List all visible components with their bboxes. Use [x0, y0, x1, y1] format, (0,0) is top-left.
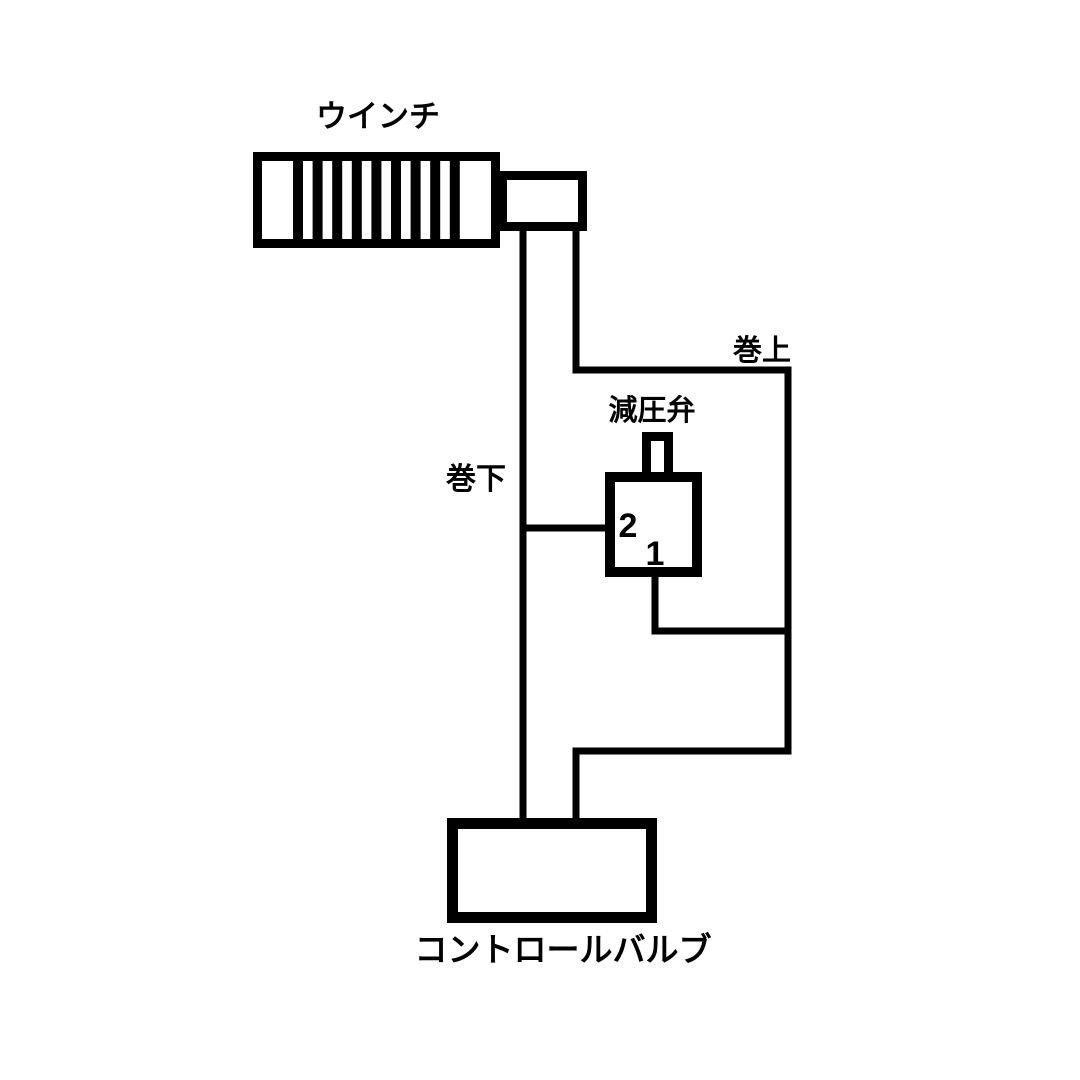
winch-motor-block	[503, 176, 583, 227]
reducing-valve-label: 減圧弁	[608, 394, 695, 427]
reducing-valve-adjuster-stub	[647, 437, 669, 477]
diagram-canvas: 2 1 ウインチ 巻上 減圧弁 巻下 コントロールバルブ	[0, 0, 1080, 1080]
winch-symbol	[258, 157, 583, 244]
reducing-valve-outlet-line	[655, 572, 788, 631]
port-2-label: 2	[619, 507, 638, 545]
reducing-valve-symbol: 2 1	[610, 437, 697, 574]
port-1-label: 1	[646, 535, 665, 573]
hydraulic-circuit-svg: 2 1 ウインチ 巻上 減圧弁 巻下 コントロールバルブ	[0, 0, 1080, 1080]
control-valve-body	[453, 824, 652, 918]
hoist-down-label: 巻下	[445, 463, 506, 496]
control-valve-label: コントロールバルブ	[415, 931, 712, 968]
winch-label: ウインチ	[316, 99, 440, 134]
winch-drum-stripes	[293, 160, 460, 240]
hoist-up-label: 巻上	[733, 334, 791, 367]
